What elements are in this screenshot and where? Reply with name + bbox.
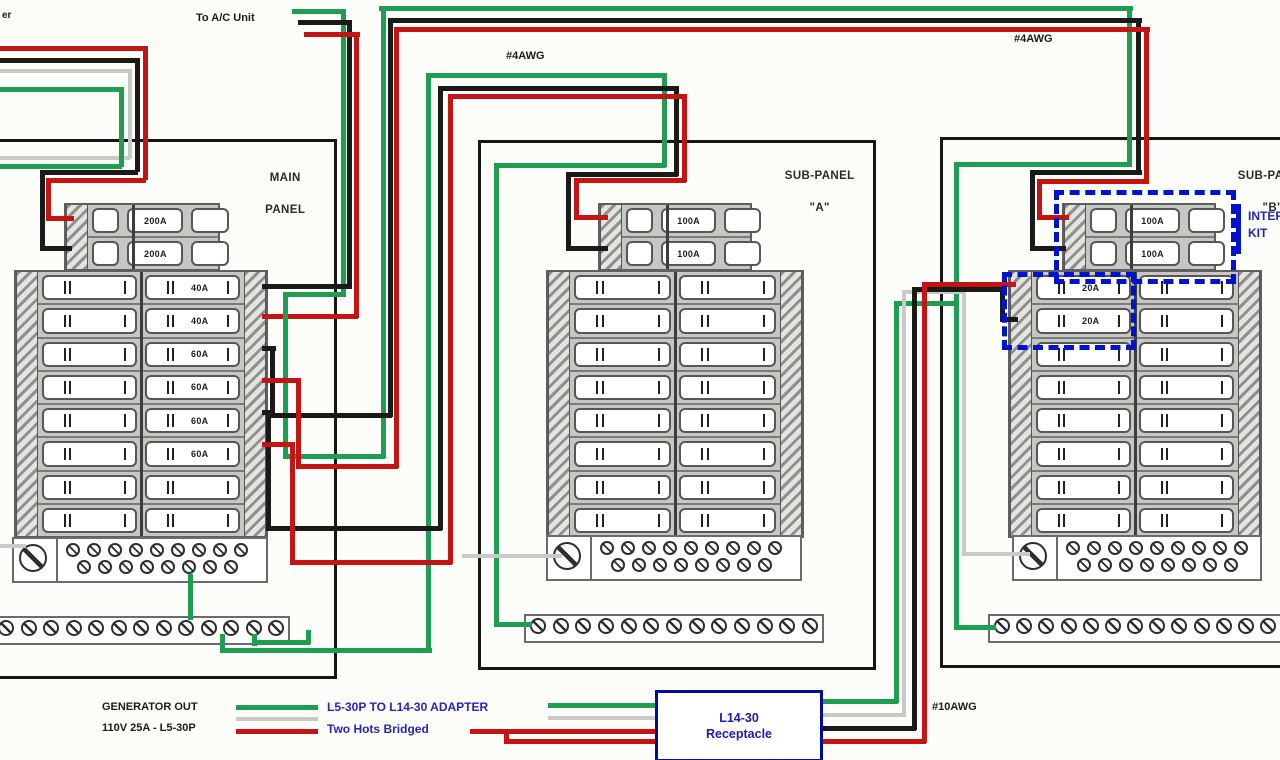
bus-screw: [663, 541, 677, 555]
wire-segment-white: [820, 713, 906, 717]
wire-segment-red: [922, 282, 927, 743]
bus-screw: [1150, 541, 1164, 555]
breaker-handle-tick: [1221, 414, 1223, 427]
bus-divider: [56, 539, 58, 581]
wire-segment-red: [394, 27, 399, 468]
breaker-handle-tick: [64, 315, 66, 328]
wire-segment-red: [448, 94, 453, 564]
breaker-handle-tick: [172, 315, 174, 328]
breaker-handle-tick: [227, 315, 229, 328]
wire-segment-red: [1144, 27, 1149, 183]
main-breaker-pole: 100A: [622, 205, 750, 236]
bus-screw: [201, 620, 217, 636]
breaker-handle-tick: [1058, 448, 1060, 461]
neutral-bus-bar: [1012, 535, 1262, 581]
breaker-handle-tick: [227, 348, 229, 361]
bus-screw: [1105, 618, 1121, 634]
breaker-cell: [679, 475, 776, 500]
wire-segment-green: [426, 73, 666, 78]
wire-segment-red: [470, 729, 658, 734]
breaker-handle-tick: [227, 448, 229, 461]
breaker-handle-tick: [172, 281, 174, 294]
breaker-cell: [574, 375, 671, 400]
breaker-handle-tick: [227, 281, 229, 294]
breaker-cell: [1139, 375, 1234, 400]
breaker-handle-tick: [1166, 448, 1168, 461]
wire-segment-green: [954, 162, 1132, 167]
breaker-handle-tick: [596, 348, 598, 361]
ground-bus-bar: [0, 616, 290, 645]
wire-segment-black: [40, 246, 72, 251]
wire-segment-white: [128, 69, 132, 159]
wire-segment-red: [262, 378, 300, 383]
breaker-terminal-hatch: [1238, 272, 1260, 536]
breaker-amp-label: 60A: [191, 382, 208, 392]
breaker-cell: [574, 308, 671, 333]
breaker-cell: [42, 408, 137, 433]
breaker-cell: [1036, 408, 1131, 433]
bus-screw: [192, 543, 206, 557]
breaker-handle-tick: [602, 315, 604, 328]
breaker-handle-tick: [172, 481, 174, 494]
breaker-cell: [1139, 408, 1234, 433]
bus-screw: [150, 543, 164, 557]
wire-segment-white: [0, 156, 130, 160]
breaker-handle-tick: [602, 481, 604, 494]
feeder-b-gauge-label: #4AWG: [1014, 33, 1053, 45]
bus-screw: [171, 543, 185, 557]
wire-segment-red: [1037, 179, 1042, 219]
breaker-handle-tick: [1161, 348, 1163, 361]
breaker-cell: [42, 441, 137, 466]
bus-screw: [1194, 618, 1210, 634]
wire-segment-red: [504, 739, 658, 744]
breaker-handle-tick: [763, 381, 765, 394]
wire-segment-black: [820, 726, 916, 731]
breaker-handle-tick: [1161, 514, 1163, 527]
interlock-dashed-outline-main: [1054, 190, 1236, 284]
breaker-handle-tick: [1161, 448, 1163, 461]
breaker-cell: [679, 408, 776, 433]
bus-screw: [88, 620, 104, 636]
breaker-cell: 40A: [145, 308, 240, 333]
breaker-handle-tick: [1221, 448, 1223, 461]
bus-screw: [66, 543, 80, 557]
breaker-handle-tick: [1221, 348, 1223, 361]
breaker-handle-tick: [1161, 381, 1163, 394]
wire-segment-green: [0, 164, 122, 169]
breaker-cell: [574, 408, 671, 433]
ground-bus-bar: [988, 614, 1280, 643]
breaker-handle-tick: [1063, 448, 1065, 461]
feeder-a-gauge-label: #4AWG: [506, 50, 545, 62]
breaker-handle-tick: [64, 448, 66, 461]
breaker-cell: [92, 208, 119, 233]
breaker-handle-tick: [227, 414, 229, 427]
sub-panel-a-label: SUB-PANEL "A": [755, 152, 870, 232]
breaker-cell: [1139, 508, 1234, 533]
bus-screw: [129, 543, 143, 557]
bus-screw: [757, 618, 773, 634]
ground-bus-bar: [524, 614, 824, 643]
wire-segment-black: [1030, 170, 1035, 250]
breaker-handle-tick: [124, 481, 126, 494]
bus-screw: [1083, 618, 1099, 634]
breaker-handle-tick: [1063, 514, 1065, 527]
bus-screw: [666, 618, 682, 634]
breaker-handle-tick: [1161, 481, 1163, 494]
wire-segment-red: [0, 46, 148, 51]
bus-screw: [802, 618, 818, 634]
breaker-handle-tick: [707, 315, 709, 328]
breaker-terminal-hatch: [66, 205, 88, 269]
breaker-cell: [679, 308, 776, 333]
breaker-handle-tick: [1118, 481, 1120, 494]
bus-screw: [133, 620, 149, 636]
wire-segment-green: [292, 9, 346, 14]
breaker-handle-tick: [64, 481, 66, 494]
breaker-cell: [626, 241, 653, 266]
wire-segment-red: [574, 178, 686, 183]
bus-screw: [1066, 541, 1080, 555]
breaker-handle-tick: [658, 381, 660, 394]
breaker-handle-tick: [227, 381, 229, 394]
bus-screw: [1192, 541, 1206, 555]
bus-screw: [598, 618, 614, 634]
wire-segment-black: [1030, 170, 1142, 175]
bus-screw: [575, 618, 591, 634]
breaker-handle-tick: [1058, 514, 1060, 527]
wire-segment-red: [394, 27, 1150, 32]
breaker-handle-tick: [1166, 481, 1168, 494]
breaker-cell: [1036, 441, 1131, 466]
bus-screw: [1098, 558, 1112, 572]
breaker-amp-label: 60A: [191, 416, 208, 426]
wire-segment-black: [566, 172, 571, 250]
breaker-handle-tick: [1063, 481, 1065, 494]
breaker-handle-tick: [124, 281, 126, 294]
wire-segment-black: [298, 20, 352, 25]
breaker-handle-tick: [64, 414, 66, 427]
breaker-cell: [42, 475, 137, 500]
breaker-cell: 60A: [145, 375, 240, 400]
breaker-cell: [679, 375, 776, 400]
bus-screw: [178, 620, 194, 636]
breaker-amp-label: 60A: [191, 449, 208, 459]
breaker-handle-tick: [701, 414, 703, 427]
bus-screw: [1077, 558, 1091, 572]
wire-segment-red: [262, 314, 358, 319]
bus-screw: [1182, 558, 1196, 572]
breaker-cell: [574, 342, 671, 367]
bus-screw: [621, 541, 635, 555]
bus-screw: [621, 618, 637, 634]
wire-segment-red: [236, 729, 318, 734]
breaker-cell: [574, 475, 671, 500]
breaker-handle-tick: [596, 281, 598, 294]
wire-segment-black: [566, 246, 608, 251]
bus-screw: [161, 560, 175, 574]
breaker-handle-tick: [172, 381, 174, 394]
breaker-handle-tick: [172, 348, 174, 361]
breaker-cell: [42, 375, 137, 400]
wire-segment-black: [674, 86, 679, 176]
breaker-handle-tick: [763, 281, 765, 294]
breaker-handle-tick: [707, 381, 709, 394]
breaker-handle-tick: [1118, 414, 1120, 427]
bus-screw: [684, 541, 698, 555]
wire-segment-black: [270, 413, 392, 418]
wire-segment-white: [0, 544, 26, 548]
breaker-cell: [679, 508, 776, 533]
bus-screw: [643, 618, 659, 634]
breaker-cell: [1139, 342, 1234, 367]
bus-screw: [182, 560, 196, 574]
wire-segment-green: [119, 87, 124, 167]
breaker-handle-tick: [763, 315, 765, 328]
neutral-bus-bar: [546, 535, 802, 581]
breaker-cell: [679, 441, 776, 466]
breaker-handle-tick: [227, 481, 229, 494]
breaker-handle-tick: [167, 514, 169, 527]
wire-segment-green: [283, 292, 288, 458]
breaker-handle-tick: [658, 281, 660, 294]
bus-screw: [779, 618, 795, 634]
branch-breaker-block: [546, 270, 804, 538]
bus-screw: [1216, 618, 1232, 634]
meter-label-fragment: er: [2, 10, 11, 21]
branch-breaker-block: 40A40A60A60A60A60A: [14, 270, 268, 538]
wire-segment-white: [462, 554, 562, 558]
bus-screw: [711, 618, 727, 634]
breaker-amp-label: 100A: [677, 249, 700, 259]
breaker-terminal-hatch: [548, 272, 570, 536]
breaker-handle-tick: [707, 348, 709, 361]
ac-unit-label: To A/C Unit: [196, 12, 255, 24]
bus-screw: [98, 560, 112, 574]
wire-segment-green: [494, 163, 666, 168]
breaker-cell: [1139, 441, 1234, 466]
bus-screw: [653, 558, 667, 572]
breaker-handle-tick: [69, 514, 71, 527]
breaker-cell: 200A: [127, 241, 183, 266]
breaker-cell: [92, 241, 119, 266]
breaker-handle-tick: [167, 481, 169, 494]
main-breaker-pole: 200A: [88, 236, 218, 269]
bus-screw: [1203, 558, 1217, 572]
breaker-handle-tick: [1058, 414, 1060, 427]
wire-segment-red: [296, 378, 301, 468]
breaker-handle-tick: [658, 481, 660, 494]
bus-screw: [1224, 558, 1238, 572]
breaker-cell: [145, 475, 240, 500]
breaker-handle-tick: [227, 514, 229, 527]
breaker-handle-tick: [602, 448, 604, 461]
bus-screw: [1260, 618, 1276, 634]
wire-segment-green: [236, 705, 318, 710]
breaker-tie-bar: [666, 205, 669, 269]
bus-screw: [734, 618, 750, 634]
wire-segment-red: [574, 215, 608, 220]
bus-screw: [108, 543, 122, 557]
wire-segment-green: [954, 162, 959, 630]
breaker-cell: [1139, 475, 1234, 500]
breaker-cell: [574, 441, 671, 466]
wire-segment-green: [954, 625, 996, 630]
breaker-handle-tick: [1221, 481, 1223, 494]
breaker-handle-tick: [69, 414, 71, 427]
bus-screw: [111, 620, 127, 636]
bus-screw: [1234, 541, 1248, 555]
wire-segment-black: [1136, 18, 1141, 174]
legend-adapter-line2: Two Hots Bridged: [327, 722, 429, 736]
breaker-handle-tick: [701, 514, 703, 527]
breaker-handle-tick: [167, 381, 169, 394]
breaker-terminal-hatch: [16, 272, 38, 536]
breaker-handle-tick: [64, 281, 66, 294]
bus-screw: [747, 541, 761, 555]
breaker-amp-label: 40A: [191, 283, 208, 293]
bus-screw: [553, 618, 569, 634]
breaker-handle-tick: [602, 281, 604, 294]
wire-segment-black: [266, 410, 271, 530]
breaker-handle-tick: [1118, 381, 1120, 394]
breaker-cell: 40A: [145, 275, 240, 300]
breaker-handle-tick: [658, 448, 660, 461]
wire-segment-red: [143, 46, 148, 180]
breaker-cell: [42, 342, 137, 367]
breaker-handle-tick: [701, 381, 703, 394]
breaker-handle-tick: [596, 448, 598, 461]
breaker-handle-tick: [763, 481, 765, 494]
breaker-handle-tick: [763, 348, 765, 361]
breaker-cell: [574, 508, 671, 533]
wire-segment-green: [426, 73, 431, 652]
main-panel-label: MAIN PANEL: [240, 154, 316, 234]
wire-segment-red: [304, 32, 360, 37]
breaker-cell: [42, 308, 137, 333]
wire-segment-white: [236, 717, 318, 721]
bus-divider: [1056, 537, 1058, 579]
bus-screw: [268, 620, 284, 636]
wire-segment-red: [46, 216, 74, 221]
wire-segment-red: [448, 94, 686, 99]
breaker-cell: [1036, 508, 1131, 533]
breaker-handle-tick: [701, 348, 703, 361]
breaker-handle-tick: [701, 281, 703, 294]
breaker-handle-tick: [658, 514, 660, 527]
bus-screw: [1238, 618, 1254, 634]
breaker-handle-tick: [763, 514, 765, 527]
breaker-handle-tick: [64, 348, 66, 361]
wire-segment-red: [574, 178, 579, 219]
panel-bus-stab: [140, 272, 143, 536]
breaker-handle-tick: [124, 414, 126, 427]
breaker-handle-tick: [707, 448, 709, 461]
wire-segment-green: [286, 292, 344, 297]
breaker-handle-tick: [1063, 381, 1065, 394]
breaker-cell: [1139, 308, 1234, 333]
breaker-cell: [42, 508, 137, 533]
breaker-cell: 200A: [127, 208, 183, 233]
breaker-handle-tick: [124, 381, 126, 394]
breaker-handle-tick: [1161, 414, 1163, 427]
breaker-cell: [191, 241, 229, 266]
bus-screw: [223, 620, 239, 636]
neutral-lug: [1019, 542, 1047, 570]
breaker-handle-tick: [64, 381, 66, 394]
receptacle-label-line1: L14-30: [719, 710, 759, 726]
wire-segment-white: [962, 290, 966, 554]
breaker-handle-tick: [69, 281, 71, 294]
breaker-handle-tick: [167, 448, 169, 461]
panel-bus-stab: [674, 272, 677, 536]
wire-segment-black: [40, 170, 45, 248]
breaker-handle-tick: [707, 481, 709, 494]
breaker-handle-tick: [69, 348, 71, 361]
breaker-handle-tick: [124, 514, 126, 527]
bus-screw: [66, 620, 82, 636]
breaker-handle-tick: [167, 315, 169, 328]
bus-screw: [1129, 541, 1143, 555]
l14-30-receptacle: L14-30 Receptacle: [655, 690, 823, 760]
breaker-handle-tick: [602, 414, 604, 427]
breaker-terminal-hatch: [780, 272, 802, 536]
bus-screw: [632, 558, 646, 572]
breaker-handle-tick: [1118, 448, 1120, 461]
bus-screw: [1119, 558, 1133, 572]
breaker-handle-tick: [596, 414, 598, 427]
breaker-amp-label: 200A: [144, 249, 167, 259]
breaker-handle-tick: [1221, 381, 1223, 394]
wire-segment-black: [0, 58, 140, 63]
bus-screw: [1016, 618, 1032, 634]
breaker-handle-tick: [602, 348, 604, 361]
bus-screw: [1087, 541, 1101, 555]
breaker-cell: 60A: [145, 441, 240, 466]
bus-screw: [0, 620, 14, 636]
breaker-amp-label: 60A: [191, 349, 208, 359]
wire-segment-black: [40, 170, 138, 175]
bus-screw: [674, 558, 688, 572]
breaker-handle-tick: [69, 315, 71, 328]
breaker-handle-tick: [172, 514, 174, 527]
legend-generator-line2: 110V 25A - L5-30P: [102, 722, 196, 734]
legend-generator-line1: GENERATOR OUT: [102, 701, 198, 713]
breaker-cell: [191, 208, 229, 233]
wire-segment-red: [820, 739, 926, 744]
bus-screw: [1149, 618, 1165, 634]
main-breaker: 200A200A: [64, 203, 220, 271]
breaker-handle-tick: [596, 381, 598, 394]
bus-screw: [1213, 541, 1227, 555]
wire-segment-red: [1037, 179, 1149, 184]
wire-segment-green: [820, 699, 898, 704]
wire-segment-red: [296, 464, 398, 469]
wire-segment-red: [46, 178, 146, 183]
neutral-bus-bar: [12, 537, 268, 583]
breaker-handle-tick: [763, 414, 765, 427]
wire-segment-red: [682, 94, 687, 182]
breaker-cell: 100A: [661, 208, 716, 233]
breaker-handle-tick: [69, 481, 71, 494]
bus-screw: [203, 560, 217, 574]
wire-segment-green: [306, 630, 311, 644]
wire-segment-green: [341, 9, 346, 297]
breaker-handle-tick: [701, 315, 703, 328]
bus-screw: [156, 620, 172, 636]
breaker-handle-tick: [602, 381, 604, 394]
